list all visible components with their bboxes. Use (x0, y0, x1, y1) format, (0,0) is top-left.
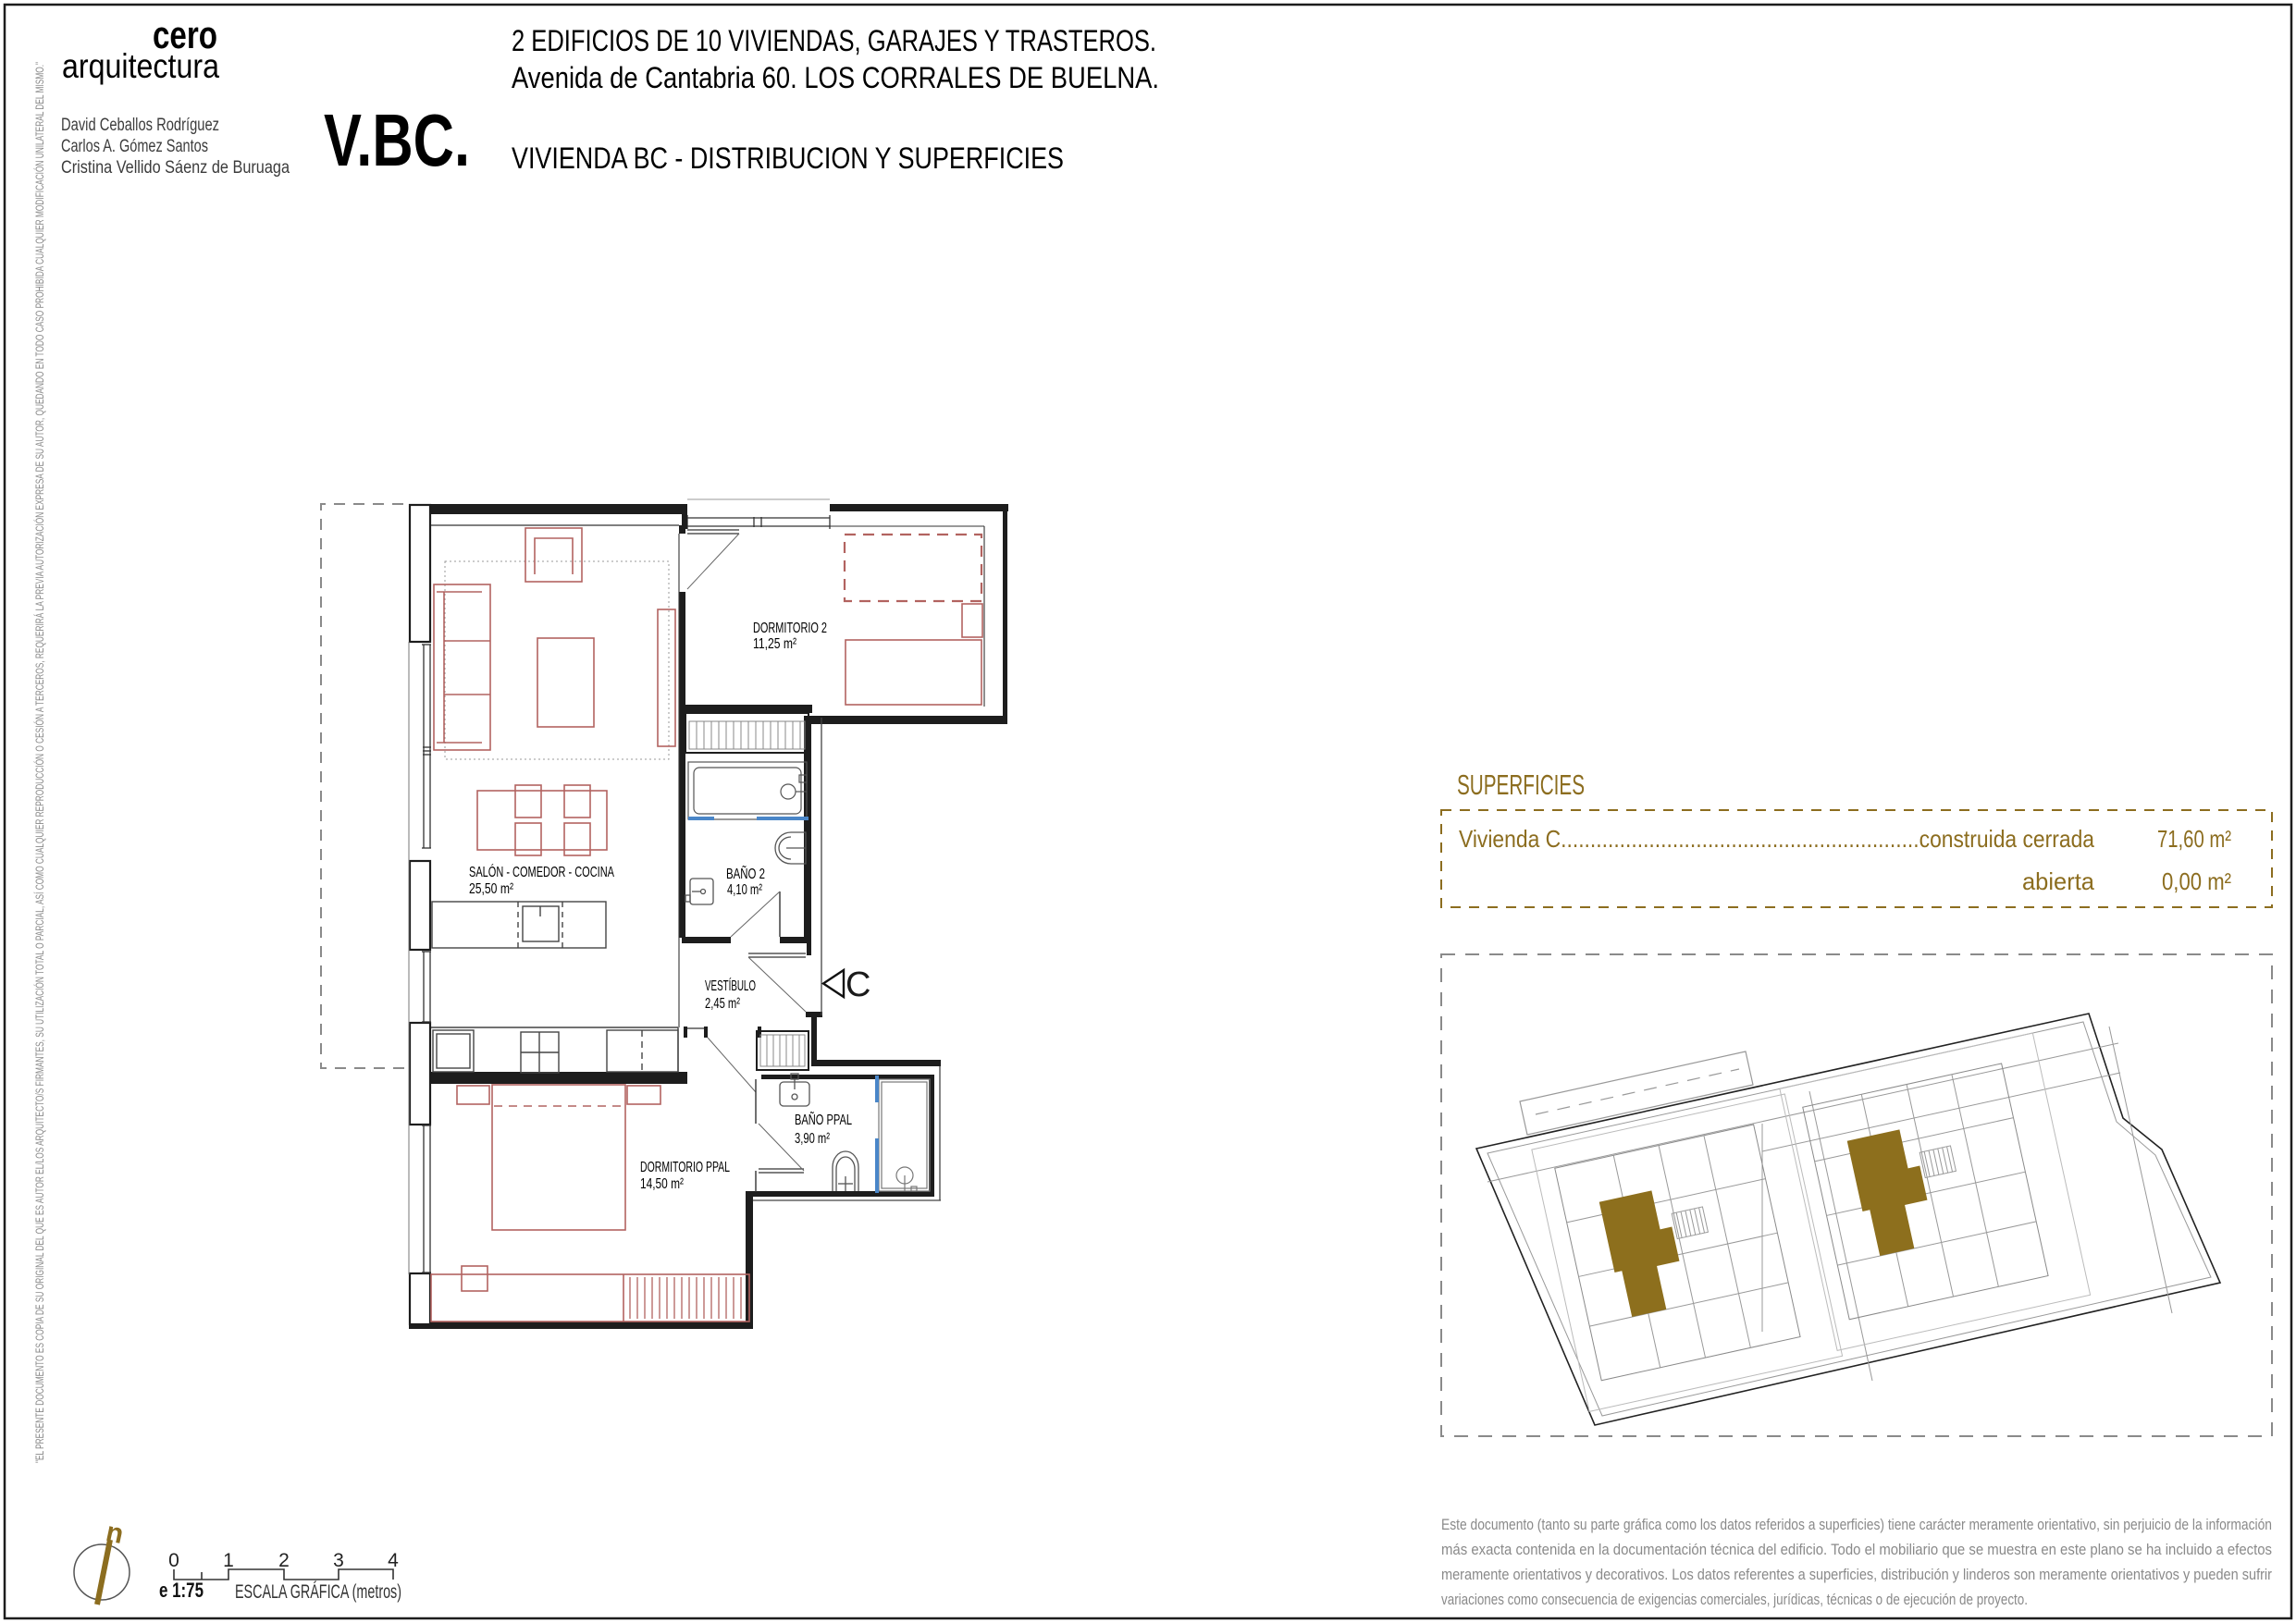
svg-text:n: n (104, 1517, 127, 1550)
svg-text:ESCALA GRÁFICA (metros): ESCALA GRÁFICA (metros) (235, 1581, 401, 1603)
svg-text:e 1:75: e 1:75 (159, 1579, 204, 1602)
svg-text:3,90 m²: 3,90 m² (795, 1131, 830, 1147)
svg-text:2,45 m²: 2,45 m² (705, 996, 740, 1012)
svg-text:V.BC.: V.BC. (324, 99, 470, 181)
svg-text:11,25 m²: 11,25 m² (753, 636, 797, 652)
svg-text:SUPERFICIES: SUPERFICIES (1457, 768, 1585, 801)
svg-text:Carlos A. Gómez Santos: Carlos A. Gómez Santos (61, 137, 208, 156)
svg-text:C: C (846, 965, 870, 1004)
svg-text:abierta: abierta (2022, 867, 2095, 895)
svg-text:VESTÍBULO: VESTÍBULO (705, 977, 756, 994)
svg-text:Este documento (tanto su parte: Este documento (tanto su parte gráfica c… (1441, 1517, 2272, 1533)
svg-text:VIVIENDA BC - DISTRIBUCION Y: VIVIENDA BC - DISTRIBUCION Y SUPERFICIES (512, 141, 1064, 175)
svg-text:4,10 m²: 4,10 m² (727, 882, 762, 898)
svg-text:DORMITORIO 2: DORMITORIO 2 (753, 621, 827, 636)
svg-text:4: 4 (388, 1550, 399, 1571)
svg-text:0: 0 (168, 1550, 179, 1571)
svg-text:1: 1 (223, 1550, 234, 1571)
svg-text:BAÑO 2: BAÑO 2 (726, 864, 765, 882)
svg-text:0,00 m²: 0,00 m² (2162, 867, 2231, 895)
svg-text:2 EDIFICIOS DE 10 VIVIENDAS, G: 2 EDIFICIOS DE 10 VIVIENDAS, GARAJES Y T… (512, 24, 1156, 57)
svg-text:"EL PRESENTE DOCUMENTO ES COPI: "EL PRESENTE DOCUMENTO ES COPIA DE SU OR… (34, 62, 46, 1463)
svg-text:Vivienda C...................: Vivienda C..............................… (1459, 825, 2094, 853)
svg-text:DORMITORIO PPAL: DORMITORIO PPAL (640, 1160, 730, 1175)
svg-text:Cristina Vellido Sáenz de Buru: Cristina Vellido Sáenz de Buruaga (61, 158, 290, 178)
svg-text:variaciones como consecuencia: variaciones como consecuencia de exigenc… (1441, 1592, 2028, 1608)
svg-text:meramente orientativos y decor: meramente orientativos y decorativos. Lo… (1441, 1567, 2272, 1583)
svg-text:2: 2 (278, 1550, 290, 1571)
svg-text:3: 3 (333, 1550, 344, 1571)
svg-text:SALÓN - COMEDOR - COCINA: SALÓN - COMEDOR - COCINA (469, 863, 614, 880)
svg-text:25,50 m²: 25,50 m² (469, 881, 514, 897)
svg-text:71,60 m²: 71,60 m² (2157, 825, 2231, 853)
svg-text:14,50 m²: 14,50 m² (640, 1176, 685, 1192)
svg-text:BAÑO PPAL: BAÑO PPAL (795, 1110, 852, 1128)
svg-text:arquitectura: arquitectura (62, 47, 219, 85)
svg-text:Avenida de Cantabria 60. LOS C: Avenida de Cantabria 60. LOS CORRALES DE… (512, 61, 1159, 94)
svg-text:más exacta contenida en la doc: más exacta contenida en la documentación… (1441, 1542, 2272, 1558)
svg-text:David Ceballos Rodríguez: David Ceballos Rodríguez (61, 116, 219, 135)
